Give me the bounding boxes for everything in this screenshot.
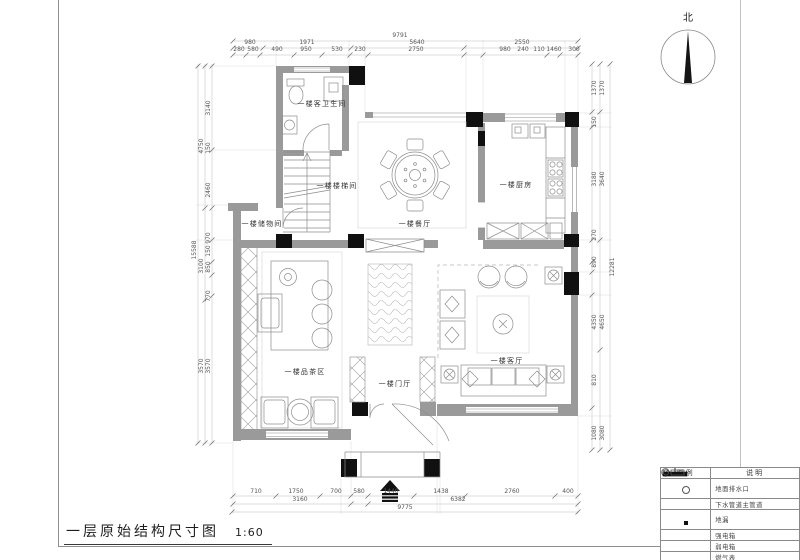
legend-label: 地漏 xyxy=(711,510,800,530)
dining-table-set xyxy=(358,122,466,228)
dim-label: 150 xyxy=(592,116,598,127)
dim-label: 2460 xyxy=(206,182,212,197)
legend-header-desc: 说明 xyxy=(711,468,800,479)
stairs xyxy=(283,150,330,232)
drain-circle-icon xyxy=(661,479,711,499)
storage-door xyxy=(283,208,303,228)
legend-row: 地漏 xyxy=(661,510,800,530)
living-room-furniture xyxy=(438,265,564,396)
dim-label: 890 xyxy=(592,256,598,267)
dim-label: 15588 xyxy=(192,240,198,259)
drawing-title: 一层原始结构尺寸图 xyxy=(66,524,219,540)
dim-label: 2760 xyxy=(504,489,519,495)
room-label-storage: 一楼储物间 xyxy=(242,220,283,228)
dim-label: 970 xyxy=(206,232,212,243)
room-label-guest-bathroom: 一楼客卫生间 xyxy=(297,100,346,108)
dim-label: 12281 xyxy=(610,257,616,276)
dim-label: 770 xyxy=(206,290,212,301)
weak-power-box-icon xyxy=(661,541,711,552)
dim-label: 150 xyxy=(206,245,212,256)
dim-label: 1438 xyxy=(433,489,448,495)
dim-label: 9775 xyxy=(397,505,412,511)
legend-label: 下水管道主管道 xyxy=(711,499,800,510)
dim-label: 1080 xyxy=(592,425,598,440)
room-label-dining: 一楼餐厅 xyxy=(399,220,432,228)
dim-label: 2750 xyxy=(408,47,423,53)
console-cabinet xyxy=(366,239,424,252)
dim-label: 230 xyxy=(354,47,365,53)
dim-label: 1750 xyxy=(288,489,303,495)
dim-label: 580 xyxy=(247,47,258,53)
dim-label: 1440 xyxy=(383,489,398,495)
legend-label: 弱电箱 xyxy=(711,541,800,552)
dim-label: 710 xyxy=(250,489,261,495)
dim-label: 3080 xyxy=(600,425,606,440)
dim-label: 3140 xyxy=(206,100,212,115)
north-label: 北 xyxy=(683,9,693,24)
dim-label: 1460 xyxy=(546,47,561,53)
room-label-stairwell: 一楼楼梯间 xyxy=(317,182,358,190)
dim-label: 980 xyxy=(499,47,510,53)
dim-label: 400 xyxy=(562,489,573,495)
dim-label: 850 xyxy=(206,261,212,272)
bathroom-fixtures xyxy=(282,77,343,150)
dim-label: 700 xyxy=(330,489,341,495)
drawing-scale: 1:60 xyxy=(235,526,264,539)
dim-label: 530 xyxy=(331,47,342,53)
dim-label: 1370 xyxy=(592,80,598,95)
dim-label: 3640 xyxy=(600,171,606,186)
dim-label: 1370 xyxy=(600,80,606,95)
legend-label: 地面排水口 xyxy=(711,479,800,499)
dim-label: 110 xyxy=(533,47,544,53)
strong-power-box-icon xyxy=(661,530,711,541)
north-compass xyxy=(661,30,715,84)
dim-label: 950 xyxy=(300,47,311,53)
room-label-entry-hall: 一楼门厅 xyxy=(379,380,412,388)
legend-label: 强电箱 xyxy=(711,530,800,541)
dim-label: 810 xyxy=(592,374,598,385)
floor-drain-square-icon xyxy=(661,510,711,530)
dim-label: 9791 xyxy=(392,33,407,39)
legend-row: 弱电箱 xyxy=(661,541,800,552)
room-label-kitchen: 一楼厨房 xyxy=(500,181,533,189)
dim-label: 490 xyxy=(271,47,282,53)
dim-label: 270 xyxy=(592,229,598,240)
legend-row: 下水管道主管道 xyxy=(661,499,800,510)
dim-label: 3180 xyxy=(592,171,598,186)
decorative-rug xyxy=(368,264,412,345)
drawing-title-block: 一层原始结构尺寸图1:60 xyxy=(64,521,272,545)
dim-label: 6382 xyxy=(450,497,465,503)
tea-area-furniture xyxy=(258,252,342,428)
legend-row: 强电箱 xyxy=(661,530,800,541)
dim-label: 300 xyxy=(568,47,579,53)
room-label-living-room: 一楼客厅 xyxy=(491,357,524,365)
dim-label: 3570 xyxy=(206,358,212,373)
legend-row: 地面排水口 xyxy=(661,479,800,499)
dim-label: 280 xyxy=(233,47,244,53)
dim-label: 3160 xyxy=(292,497,307,503)
dim-label: 4350 xyxy=(592,314,598,329)
dim-label: 150 xyxy=(206,142,212,153)
floor-plan-sheet: 北 一楼客卫生间 一楼楼梯间 一楼储物间 一楼餐厅 一楼厨房 一楼品茶区 一楼门… xyxy=(0,0,800,560)
dim-label: 580 xyxy=(353,489,364,495)
legend-row: 燃气表 xyxy=(661,552,800,560)
pipe-circle-x-icon xyxy=(661,499,711,510)
dim-label: 240 xyxy=(517,47,528,53)
gas-meter-icon xyxy=(661,552,711,560)
legend-table: 图例 说明 地面排水口 下水管道主管道 地漏 强电箱 弱电箱 xyxy=(660,467,800,560)
dim-label: 4650 xyxy=(600,314,606,329)
legend-label: 燃气表 xyxy=(711,552,800,560)
room-label-tea-area: 一楼品茶区 xyxy=(285,368,326,376)
